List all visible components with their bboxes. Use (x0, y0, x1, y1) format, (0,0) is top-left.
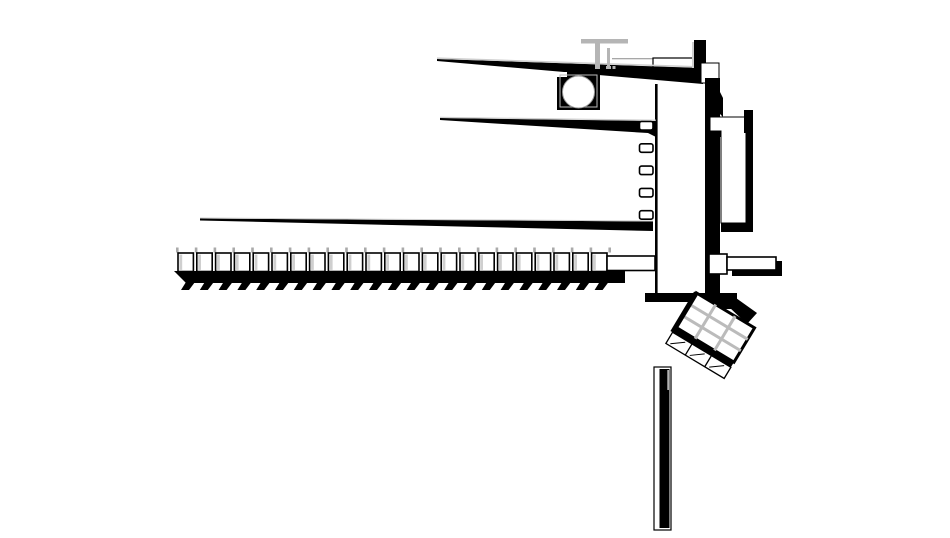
gallery-divider-tick (439, 248, 442, 253)
south-gallery (174, 248, 625, 291)
pier-shadow-south (732, 270, 781, 276)
gallery-divider-tick (176, 248, 179, 253)
gallery-divider-tick (608, 248, 611, 253)
gallery-divider-tick (326, 248, 329, 253)
gallery-shadow-tooth (425, 282, 439, 290)
gallery-shadow-tooth (444, 282, 458, 290)
gallery-module-side-face (386, 255, 389, 270)
gallery-module-side-face (255, 255, 258, 270)
annex-top-pier (744, 110, 753, 133)
gallery-shadow-tooth (275, 282, 289, 290)
gallery-module-side-face (405, 255, 408, 270)
stair-drum-circle (563, 76, 595, 108)
gallery-divider-tick (458, 248, 461, 253)
gallery-module-side-face (311, 255, 314, 270)
pier-bar (727, 257, 776, 270)
gallery-shadow-tooth (219, 282, 233, 290)
mast-secondary-stem (607, 48, 610, 68)
gallery-shadow-tooth (519, 282, 533, 290)
gallery-divider-tick (514, 248, 517, 253)
gallery-shadow-tooth (501, 282, 515, 290)
pier-base-square (709, 254, 727, 274)
plan-canvas (0, 0, 950, 538)
gallery-module-side-face (461, 255, 464, 270)
gallery-shadow-tooth (482, 282, 496, 290)
mast-crossbar (581, 39, 628, 44)
garden-wall (654, 367, 671, 530)
gallery-divider-tick (214, 248, 217, 253)
gallery-shadow-tooth (200, 282, 214, 290)
gallery-module-side-face (537, 255, 540, 270)
pergola-wire-vertical (685, 344, 692, 355)
gallery-shadow-tooth (181, 282, 195, 290)
gallery-module-side-face (217, 255, 220, 270)
gallery-divider-tick (364, 248, 367, 253)
east-pier (709, 254, 782, 276)
annex-step-shadow (710, 131, 721, 137)
gallery-shadow-tooth (350, 282, 364, 290)
gallery-module-side-face (480, 255, 483, 270)
garden-wall-core (660, 369, 670, 528)
pergola-wire-vertical (705, 356, 712, 367)
gallery-end-bar (607, 256, 655, 271)
gallery-divider-tick (552, 248, 555, 253)
mast-tick-1 (606, 66, 611, 69)
gallery-module-side-face (574, 255, 577, 270)
gallery-shadow-tooth (595, 282, 609, 290)
gallery-shadow-tooth (313, 282, 327, 290)
north-wall-shape (440, 118, 656, 137)
spine-wall (200, 218, 653, 231)
gallery-divider-tick (270, 248, 273, 253)
architectural-drawing (0, 0, 950, 538)
gallery-shadow-tooth (576, 282, 590, 290)
facade-window (640, 188, 654, 197)
gallery-shadow-tooth (557, 282, 571, 290)
gallery-module-side-face (443, 255, 446, 270)
gallery-module-side-face (330, 255, 333, 270)
gallery-module-side-face (292, 255, 295, 270)
gallery-module-side-face (499, 255, 502, 270)
gallery-divider-tick (308, 248, 311, 253)
gallery-divider-tick (590, 248, 593, 253)
main-block-interior (658, 84, 705, 295)
gallery-module-side-face (273, 255, 276, 270)
gallery-module-side-face (179, 255, 182, 270)
gallery-shadow-tooth (388, 282, 402, 290)
gallery-divider-tick (289, 248, 292, 253)
gallery-divider-tick (251, 248, 254, 253)
mast-stem (595, 43, 600, 69)
mast-tick-2 (613, 66, 616, 69)
gallery-shadow-tooth (256, 282, 270, 290)
facade-windows (640, 122, 654, 220)
gallery-shadow-tooth (538, 282, 552, 290)
gallery-module-side-face (236, 255, 239, 270)
gallery-shadow-tooth (407, 282, 421, 290)
gallery-module-side-face (518, 255, 521, 270)
garden-wall-highlight (668, 370, 669, 390)
stair-tower (557, 72, 600, 110)
annex-shadow-east (746, 121, 753, 228)
gallery-module-side-face (349, 255, 352, 270)
pier-shadow-east (776, 261, 782, 276)
gallery-shadow-tooth (463, 282, 477, 290)
facade-window (640, 122, 654, 131)
gallery-divider-tick (477, 248, 480, 253)
fin-highlight (692, 42, 694, 68)
annex-shadow-south (721, 223, 753, 232)
gallery-shadow-tooth (237, 282, 251, 290)
facade-window (640, 144, 654, 153)
gallery-module-side-face (198, 255, 201, 270)
gallery-divider-tick (571, 248, 574, 253)
gallery-divider-tick (232, 248, 235, 253)
gallery-module-side-face (424, 255, 427, 270)
gallery-module-side-face (593, 255, 596, 270)
gallery-shadow-tooth (294, 282, 308, 290)
gallery-divider-tick (533, 248, 536, 253)
gallery-divider-tick (420, 248, 423, 253)
gallery-divider-tick (496, 248, 499, 253)
gallery-divider-tick (345, 248, 348, 253)
gallery-shadow-tooth (369, 282, 383, 290)
facade-window (640, 166, 654, 175)
gallery-module-side-face (555, 255, 558, 270)
gallery-divider-tick (383, 248, 386, 253)
gallery-module-side-face (367, 255, 370, 270)
gallery-shadow-band (174, 271, 625, 283)
gallery-shadow-tooth (331, 282, 345, 290)
north-wall (440, 117, 656, 137)
gallery-divider-tick (402, 248, 405, 253)
gallery-end-bar-shape (607, 256, 655, 271)
facade-window (640, 211, 654, 220)
gallery-divider-tick (195, 248, 198, 253)
